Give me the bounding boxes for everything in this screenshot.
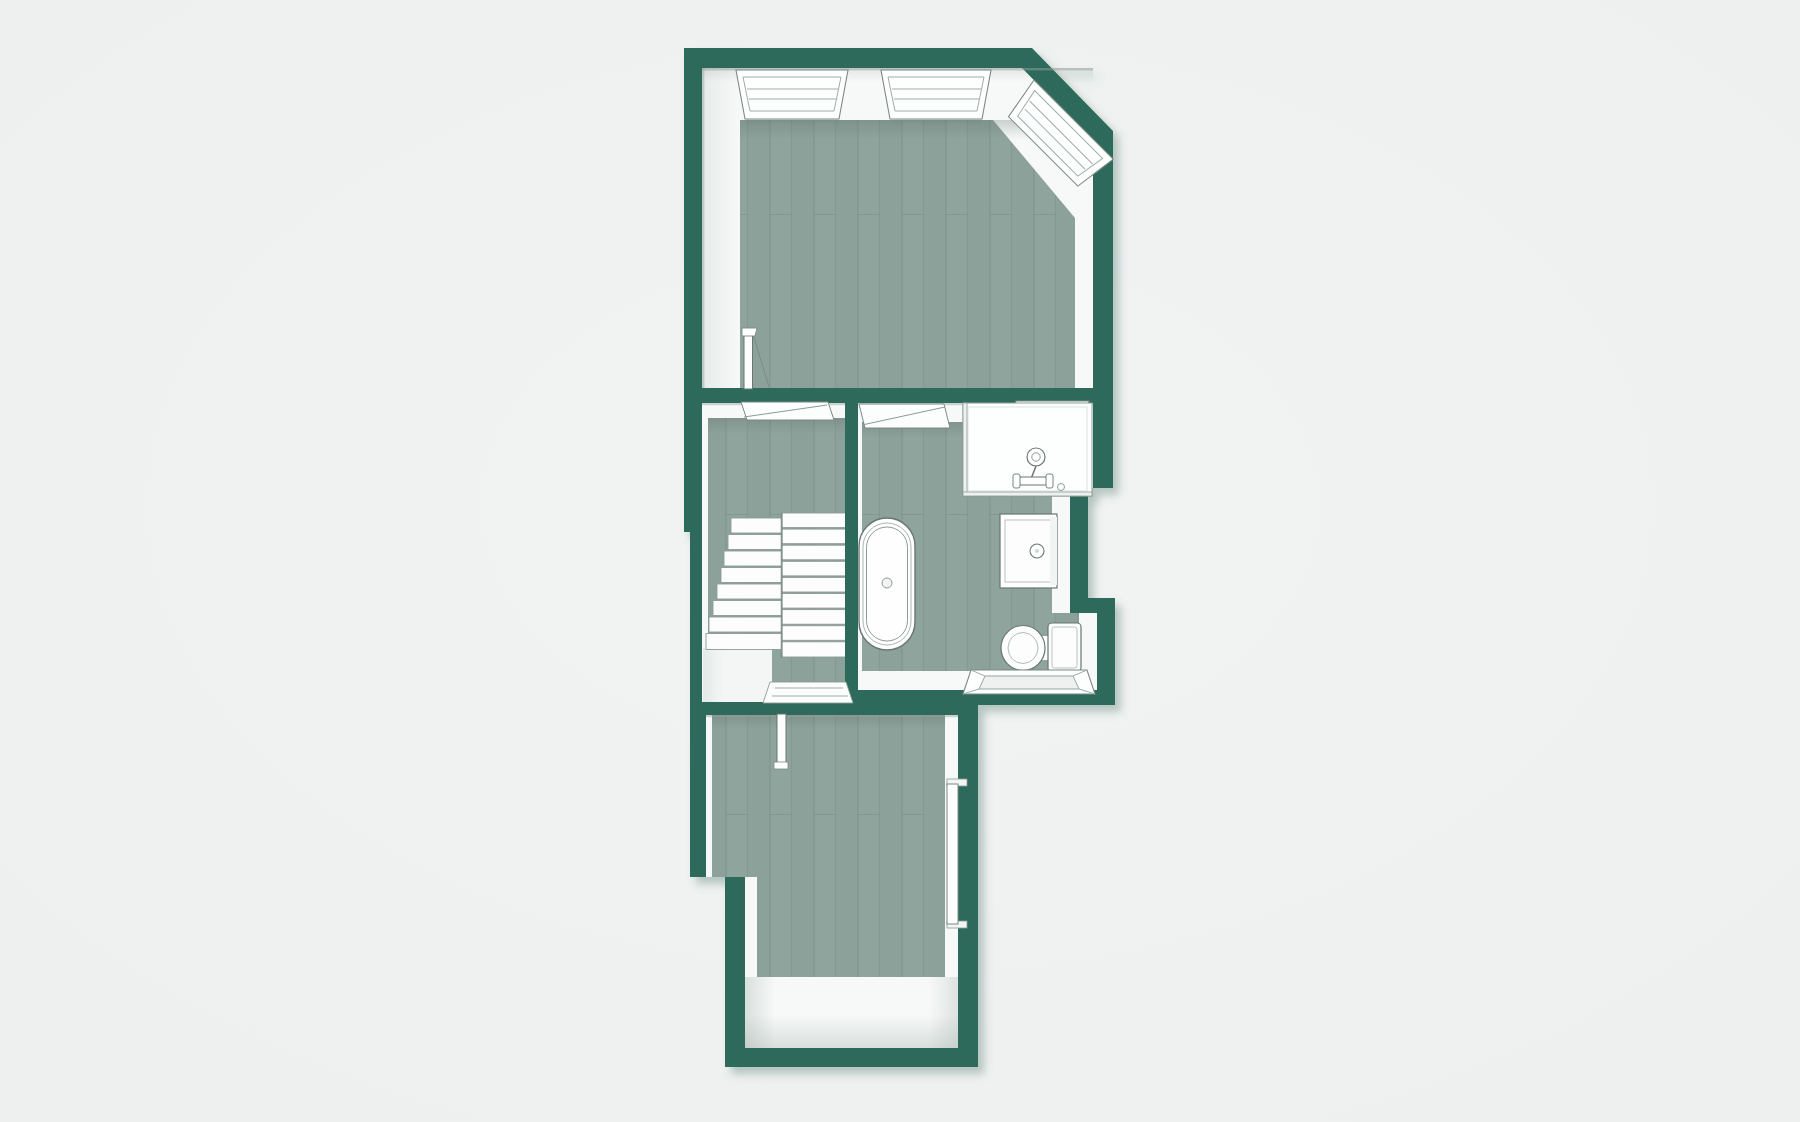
stair-tread (728, 535, 782, 550)
landing-doorway (741, 402, 834, 420)
stair-tread (731, 518, 782, 533)
top-room-floor (740, 120, 1075, 388)
bathtub-drain (882, 578, 892, 588)
window-left (736, 70, 848, 125)
stair-tread (717, 584, 782, 599)
stair-tread (782, 545, 848, 560)
sink-drain (1035, 549, 1039, 553)
bathroom-window-inner (979, 676, 1079, 689)
shower-handle (1046, 474, 1053, 488)
sink-vanity (1000, 514, 1057, 588)
stair-tread (782, 642, 848, 657)
sink-vanity-edge (1050, 517, 1057, 585)
shower-handle (1013, 474, 1020, 488)
shower (963, 403, 1092, 496)
shower-valve (1018, 477, 1048, 485)
stair-tread (724, 551, 782, 566)
shower-head-icon (1027, 448, 1045, 466)
shower-glass-front (963, 492, 1092, 496)
door-leaf (744, 331, 753, 389)
door-leaf-top (742, 328, 757, 336)
floor-plan (0, 0, 1800, 1122)
stair-tread (713, 601, 782, 616)
wall-base-line (702, 68, 704, 388)
hallway-light-floor-bottom-shade (745, 1014, 958, 1048)
stair-tread (782, 561, 848, 576)
stair-tread (721, 568, 782, 583)
stair-tread (782, 529, 848, 544)
stair-tread (782, 577, 848, 592)
stair-tread (706, 634, 782, 650)
door-leaf-end (774, 762, 788, 769)
top-room-left-wallface (702, 68, 740, 388)
bathroom-doorway (859, 404, 950, 428)
stair-tread (782, 513, 848, 528)
door-leaf (777, 714, 786, 766)
stair-tread (782, 626, 848, 641)
stair-stringer (781, 513, 783, 658)
bathroom-window (963, 670, 1095, 694)
toilet-cistern (1048, 623, 1081, 672)
stair-tread (709, 617, 782, 632)
hallway-light-floor-right-shade (928, 977, 958, 1048)
window-right (881, 70, 991, 125)
stair-tread (782, 610, 848, 625)
door-leaf (947, 784, 958, 924)
floor-plan-canvas (0, 0, 1800, 1122)
stair-tread (782, 594, 848, 609)
shower-glass-left (963, 403, 967, 496)
bathtub (859, 518, 915, 650)
wall-base-line (706, 715, 958, 717)
stair-base-shading (703, 648, 723, 702)
